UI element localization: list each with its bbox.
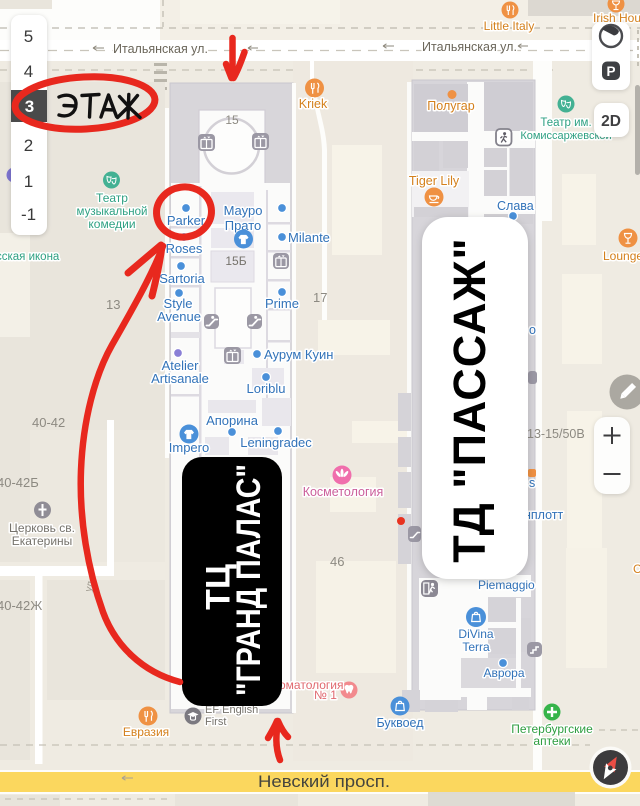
svg-text:P: P	[606, 64, 615, 79]
svg-text:46: 46	[330, 554, 344, 569]
svg-text:Итальянская ул.: Итальянская ул.	[422, 40, 517, 54]
svg-text:DiVina: DiVina	[458, 627, 493, 641]
svg-text:17: 17	[313, 290, 327, 305]
svg-text:Avenue: Avenue	[157, 309, 201, 324]
svg-text:40-42: 40-42	[32, 415, 65, 430]
svg-text:40-42Б: 40-42Б	[0, 475, 39, 490]
svg-text:Kriek: Kriek	[299, 97, 328, 111]
svg-text:Leningradec: Leningradec	[240, 435, 312, 450]
svg-text:-1: -1	[21, 205, 36, 224]
svg-text:Impero: Impero	[169, 440, 209, 455]
svg-text:13: 13	[106, 297, 120, 312]
svg-text:o: o	[529, 323, 536, 337]
svg-text:Церковь св.: Церковь св.	[9, 521, 75, 535]
svg-text:Екатерины: Екатерины	[12, 534, 73, 548]
svg-text:С: С	[633, 562, 640, 576]
svg-text:1: 1	[24, 172, 33, 191]
svg-text:3: 3	[25, 97, 34, 116]
svg-text:15Б: 15Б	[225, 254, 246, 268]
svg-text:Театр им.: Театр им.	[540, 117, 591, 129]
svg-text:First: First	[205, 716, 226, 728]
svg-text:Roses: Roses	[166, 241, 203, 256]
svg-text:Мауро: Мауро	[224, 203, 263, 218]
svg-text:Prime: Prime	[265, 296, 299, 311]
svg-text:"ГРАНД ПАЛАС": "ГРАНД ПАЛАС"	[230, 464, 268, 696]
svg-text:2: 2	[24, 136, 33, 155]
svg-text:Artisanale: Artisanale	[151, 371, 209, 386]
svg-text:Parker: Parker	[167, 213, 206, 228]
svg-text:Tiger Lily: Tiger Lily	[409, 174, 460, 188]
svg-text:5: 5	[24, 27, 33, 46]
svg-text:Невский просп.: Невский просп.	[258, 772, 390, 791]
svg-text:Полугар: Полугар	[427, 99, 474, 113]
svg-text:13-15/50В: 13-15/50В	[527, 427, 585, 441]
svg-text:LoungeRe: LoungeRe	[603, 249, 640, 263]
svg-text:нплотт: нплотт	[524, 508, 564, 522]
svg-text:Piemaggio: Piemaggio	[478, 578, 535, 592]
svg-text:Аврора: Аврора	[483, 666, 524, 680]
svg-text:Буквоед: Буквоед	[376, 716, 424, 730]
svg-text:сская икона: сская икона	[0, 251, 60, 263]
svg-text:Sartoria: Sartoria	[159, 271, 205, 286]
svg-text:15: 15	[225, 113, 239, 127]
svg-text:40-42Ж: 40-42Ж	[0, 598, 42, 613]
svg-text:s: s	[529, 476, 535, 490]
svg-text:Евразия: Евразия	[123, 725, 169, 739]
svg-text:Loriblu: Loriblu	[246, 381, 285, 396]
svg-text:ТД "ПАССАЖ": ТД "ПАССАЖ"	[444, 237, 495, 562]
svg-text:Аурум Куин: Аурум Куин	[264, 347, 333, 362]
svg-text:4: 4	[24, 62, 33, 81]
svg-text:Слава: Слава	[497, 199, 534, 213]
svg-text:№ 1: № 1	[314, 688, 337, 702]
svg-text:Milante: Milante	[288, 230, 330, 245]
svg-text:Театр: Театр	[96, 191, 128, 205]
svg-text:Итальянская ул.: Итальянская ул.	[113, 42, 208, 56]
svg-text:Апорина: Апорина	[206, 413, 259, 428]
svg-text:комедии: комедии	[88, 217, 135, 231]
svg-text:Косметология: Косметология	[303, 485, 384, 499]
svg-text:аптеки: аптеки	[533, 734, 570, 748]
svg-text:Terra: Terra	[462, 640, 490, 654]
svg-text:Little Italy: Little Italy	[484, 19, 535, 33]
svg-text:2D: 2D	[601, 113, 621, 130]
